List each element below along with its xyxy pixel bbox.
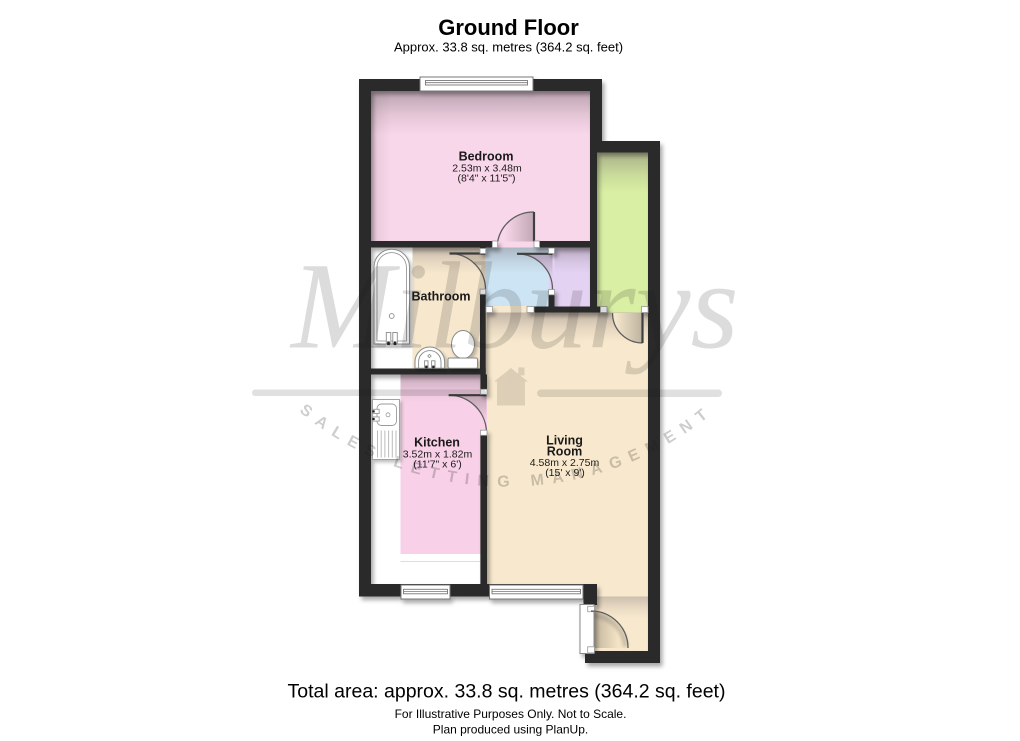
svg-text:(15' x 9'): (15' x 9')	[545, 467, 585, 479]
svg-text:Kitchen: Kitchen	[414, 436, 460, 450]
svg-text:Plan produced using PlanUp.: Plan produced using PlanUp.	[433, 723, 588, 737]
svg-text:(8'4" x 11'5"): (8'4" x 11'5")	[458, 173, 516, 185]
svg-text:Bedroom: Bedroom	[459, 150, 514, 164]
svg-text:Approx. 33.8 sq. metres (364.2: Approx. 33.8 sq. metres (364.2 sq. feet)	[394, 40, 623, 55]
svg-text:(11'7" x 6'): (11'7" x 6')	[413, 459, 461, 471]
svg-text:Total area: approx. 33.8 sq. m: Total area: approx. 33.8 sq. metres (364…	[288, 681, 726, 703]
svg-text:Bathroom: Bathroom	[411, 290, 470, 304]
svg-text:Milburys: Milburys	[289, 238, 739, 375]
svg-text:Ground Floor: Ground Floor	[438, 15, 579, 40]
svg-text:For Illustrative Purposes Only: For Illustrative Purposes Only. Not to S…	[395, 707, 627, 721]
